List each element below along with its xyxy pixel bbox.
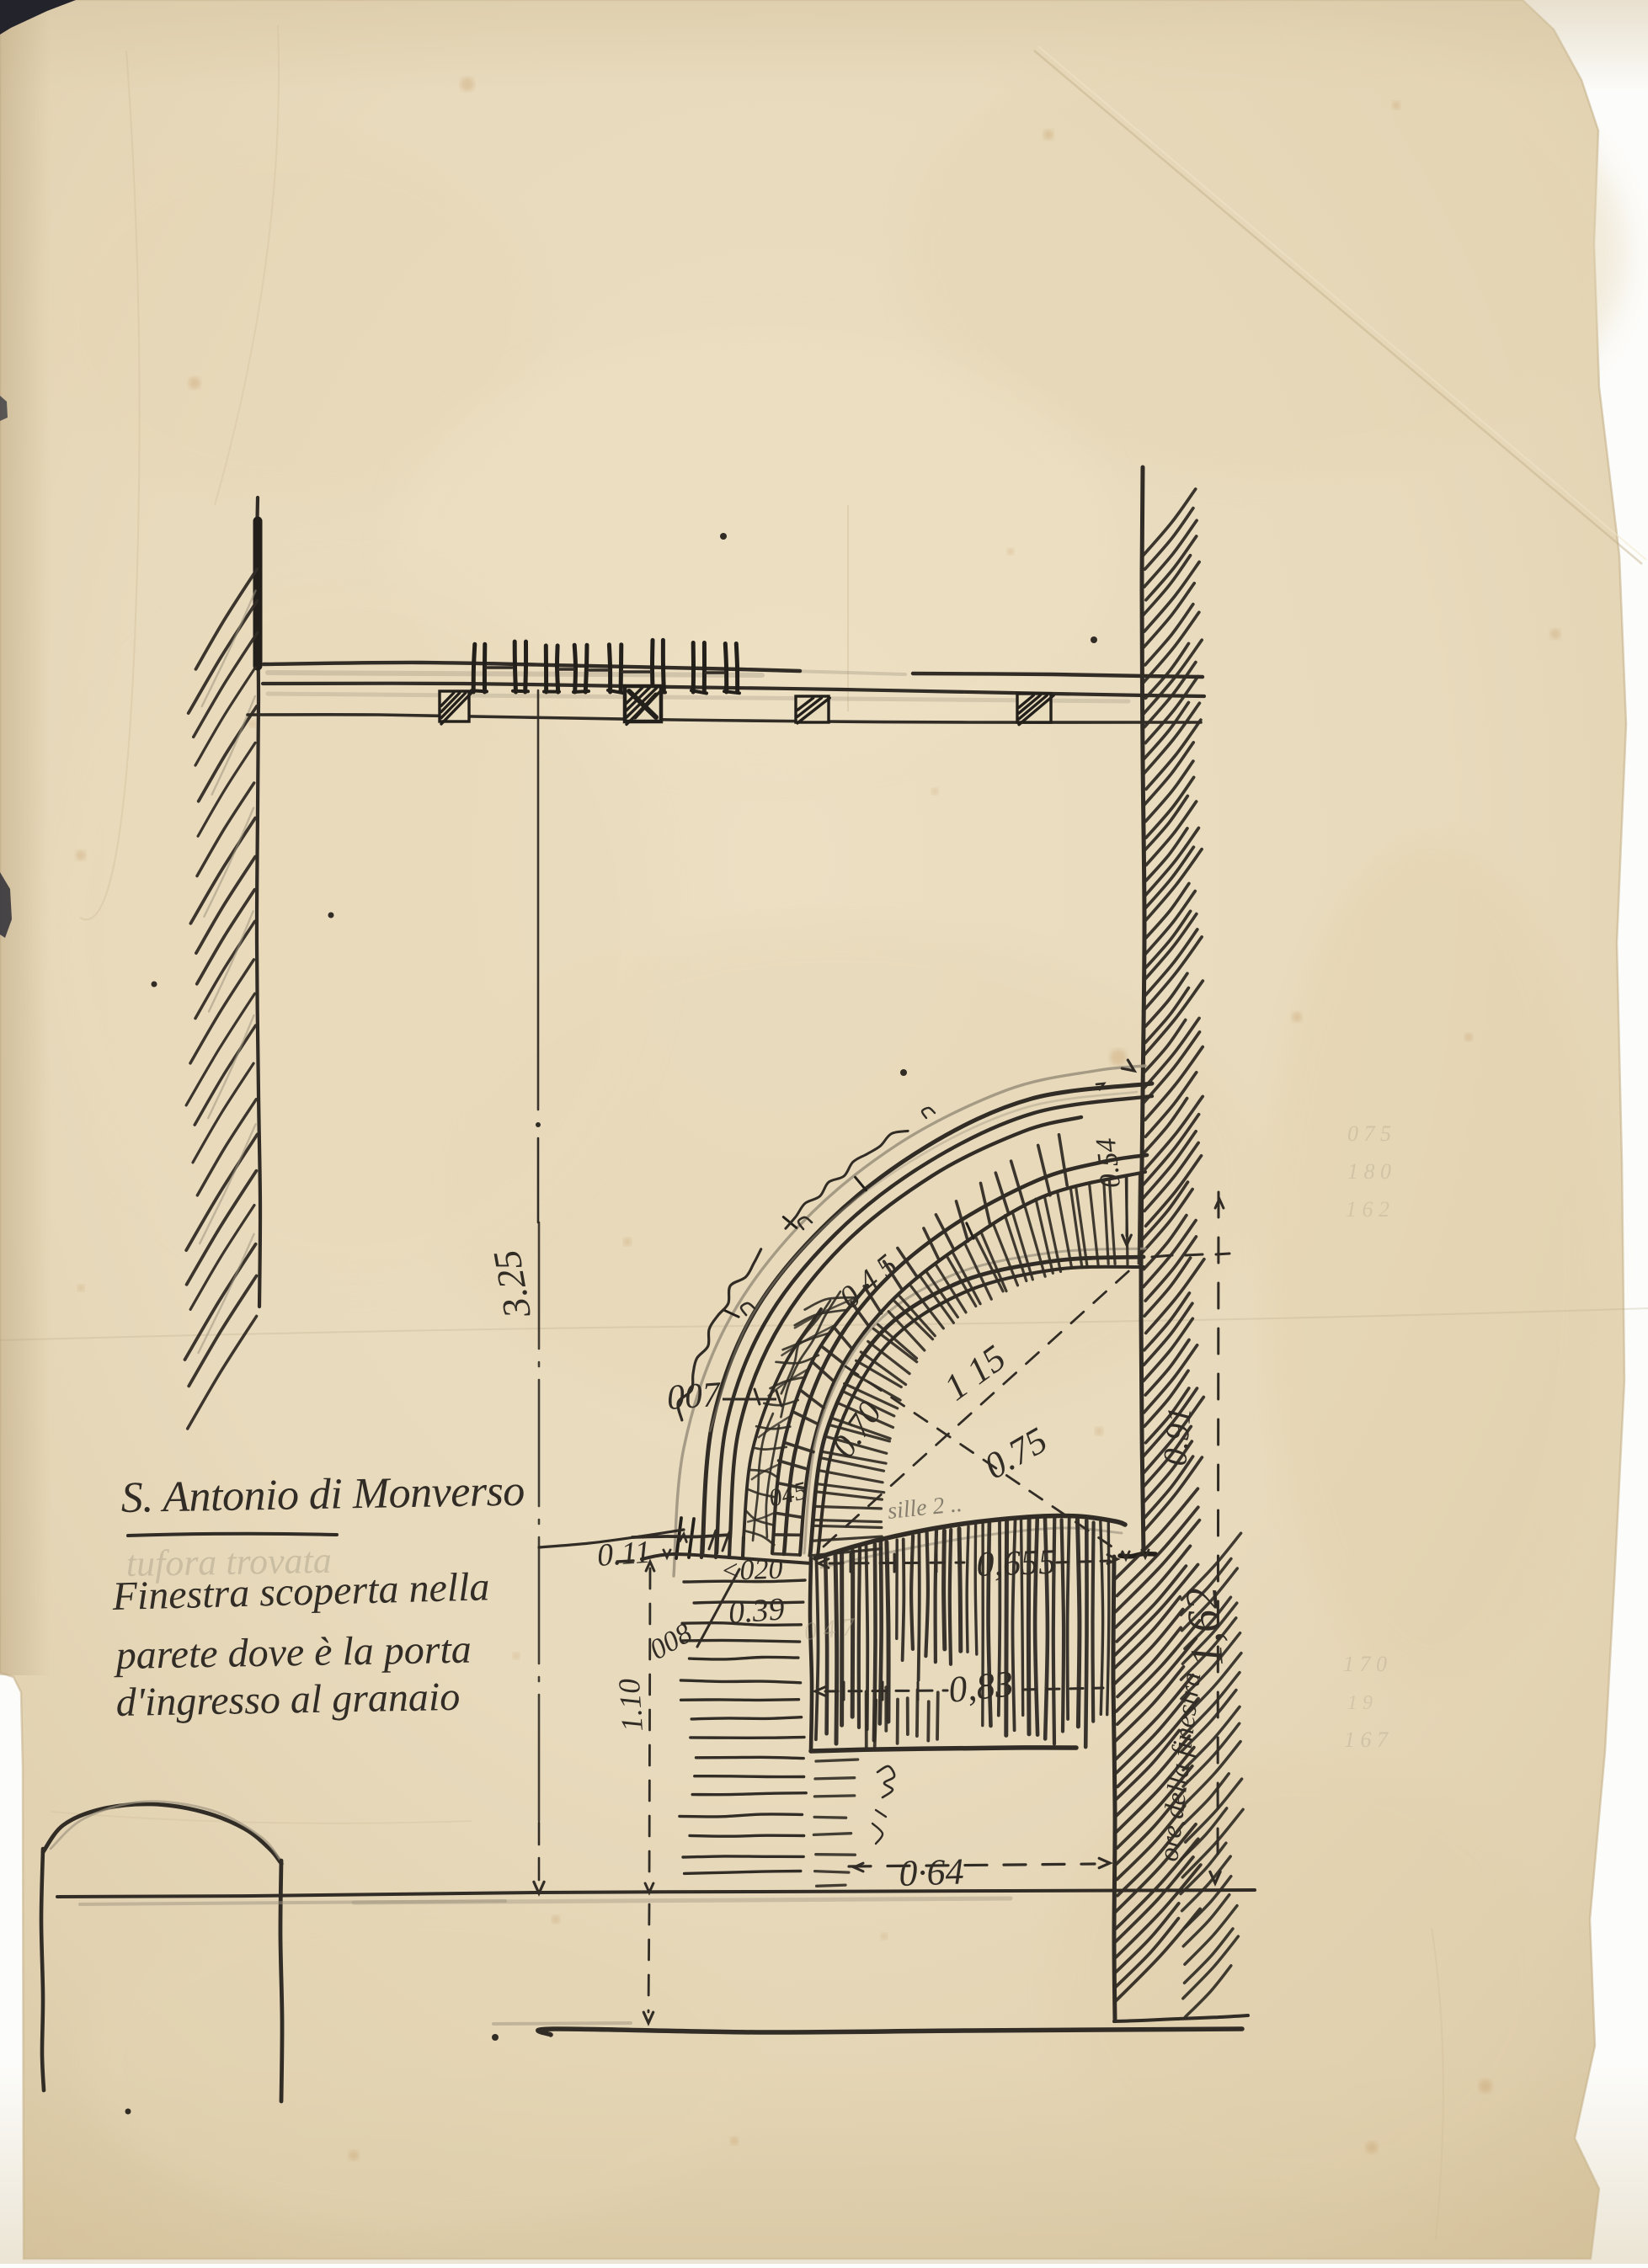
svg-text:<020: <020 xyxy=(720,1553,783,1587)
svg-text:S. Antonio di Monverso: S. Antonio di Monverso xyxy=(120,1467,525,1522)
svg-text:0·64: 0·64 xyxy=(899,1850,965,1894)
svg-text:0.54: 0.54 xyxy=(1091,1137,1127,1190)
svg-text:parete dove è la porta: parete dove è la porta xyxy=(113,1627,472,1678)
svg-text:d'ingresso al granaio: d'ingresso al granaio xyxy=(115,1674,460,1725)
svg-text:0.11: 0.11 xyxy=(596,1535,652,1573)
svg-text:1 8 0: 1 8 0 xyxy=(1347,1159,1391,1184)
svg-text:0,83: 0,83 xyxy=(947,1663,1016,1711)
svg-text:1.10: 1.10 xyxy=(612,1678,649,1733)
svg-text:0.39: 0.39 xyxy=(728,1591,786,1631)
svg-text:1,62: 1,62 xyxy=(1176,1585,1233,1669)
svg-text:1 9: 1 9 xyxy=(1347,1692,1373,1714)
svg-text:007: 007 xyxy=(665,1376,723,1418)
svg-text:0 4 7: 0 4 7 xyxy=(803,1613,857,1646)
svg-text:1 7 0: 1 7 0 xyxy=(1343,1652,1387,1676)
svg-text:1 6 2: 1 6 2 xyxy=(1346,1197,1389,1222)
svg-text:1 6 7: 1 6 7 xyxy=(1344,1728,1389,1752)
svg-text:0 7 5: 0 7 5 xyxy=(1347,1121,1391,1146)
svg-text:0.91: 0.91 xyxy=(1155,1405,1198,1467)
svg-text:0,655: 0,655 xyxy=(976,1543,1057,1584)
